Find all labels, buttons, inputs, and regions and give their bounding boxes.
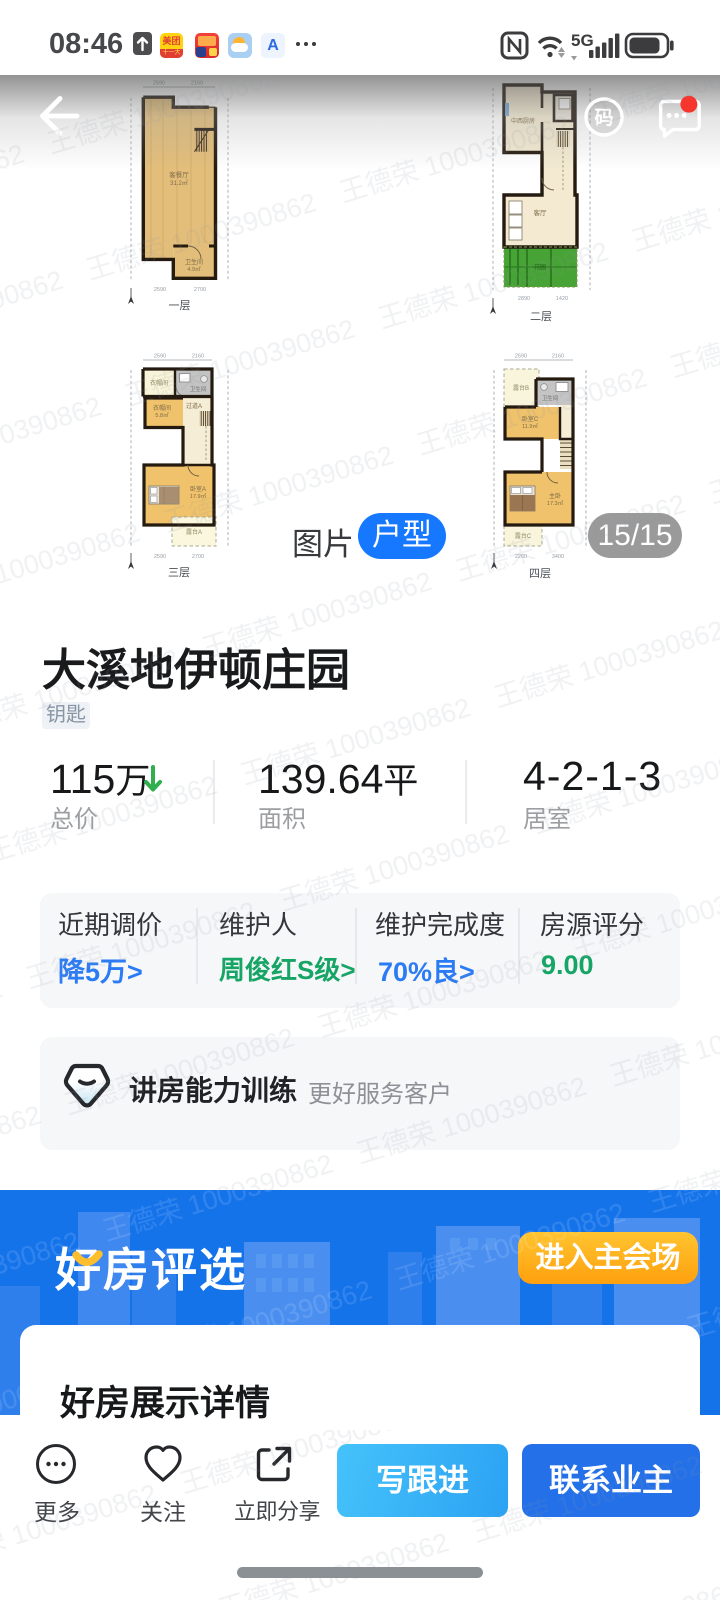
svg-text:一层: 一层	[169, 299, 191, 312]
svg-text:17.9㎡: 17.9㎡	[190, 492, 207, 500]
svg-text:衣帽间: 衣帽间	[153, 404, 171, 412]
svg-text:露台C: 露台C	[515, 532, 532, 540]
svg-text:2260: 2260	[515, 554, 527, 560]
svg-text:2590: 2590	[154, 554, 166, 560]
svg-text:31.2㎡: 31.2㎡	[170, 179, 188, 187]
svg-text:衣帽间: 衣帽间	[150, 379, 168, 387]
svg-text:卫生间: 卫生间	[542, 394, 559, 402]
svg-text:5G: 5G	[571, 31, 594, 50]
svg-text:四层: 四层	[529, 567, 551, 580]
svg-text:二层: 二层	[530, 310, 552, 323]
svg-text:露台B: 露台B	[513, 384, 529, 392]
svg-text:过道A: 过道A	[186, 402, 202, 410]
svg-text:2590: 2590	[154, 287, 166, 293]
svg-text:卫生间: 卫生间	[185, 258, 203, 266]
svg-text:2590: 2590	[154, 354, 166, 360]
svg-text:卧室A: 卧室A	[190, 485, 206, 493]
svg-text:2160: 2160	[552, 354, 564, 360]
svg-text:码: 码	[594, 108, 613, 129]
svg-text:客厅: 客厅	[534, 208, 548, 217]
svg-text:4.9㎡: 4.9㎡	[187, 265, 201, 273]
svg-text:露台A: 露台A	[186, 528, 202, 536]
svg-text:主卧: 主卧	[549, 492, 561, 500]
svg-text:5.8㎡: 5.8㎡	[155, 411, 169, 419]
svg-text:三层: 三层	[168, 566, 190, 579]
svg-text:17.3㎡: 17.3㎡	[547, 499, 564, 507]
svg-text:2160: 2160	[192, 354, 204, 360]
svg-text:卧室C: 卧室C	[522, 415, 539, 423]
svg-text:11.9㎡: 11.9㎡	[522, 422, 538, 430]
svg-text:卫生间: 卫生间	[190, 385, 207, 393]
svg-text:2890: 2890	[518, 296, 530, 302]
svg-text:2700: 2700	[194, 287, 206, 293]
svg-text:3400: 3400	[552, 554, 564, 560]
svg-text:客餐厅: 客餐厅	[169, 170, 189, 179]
svg-text:1420: 1420	[556, 296, 568, 302]
svg-text:2700: 2700	[192, 554, 204, 560]
svg-text:花园: 花园	[534, 263, 546, 271]
svg-text:2590: 2590	[515, 354, 527, 360]
